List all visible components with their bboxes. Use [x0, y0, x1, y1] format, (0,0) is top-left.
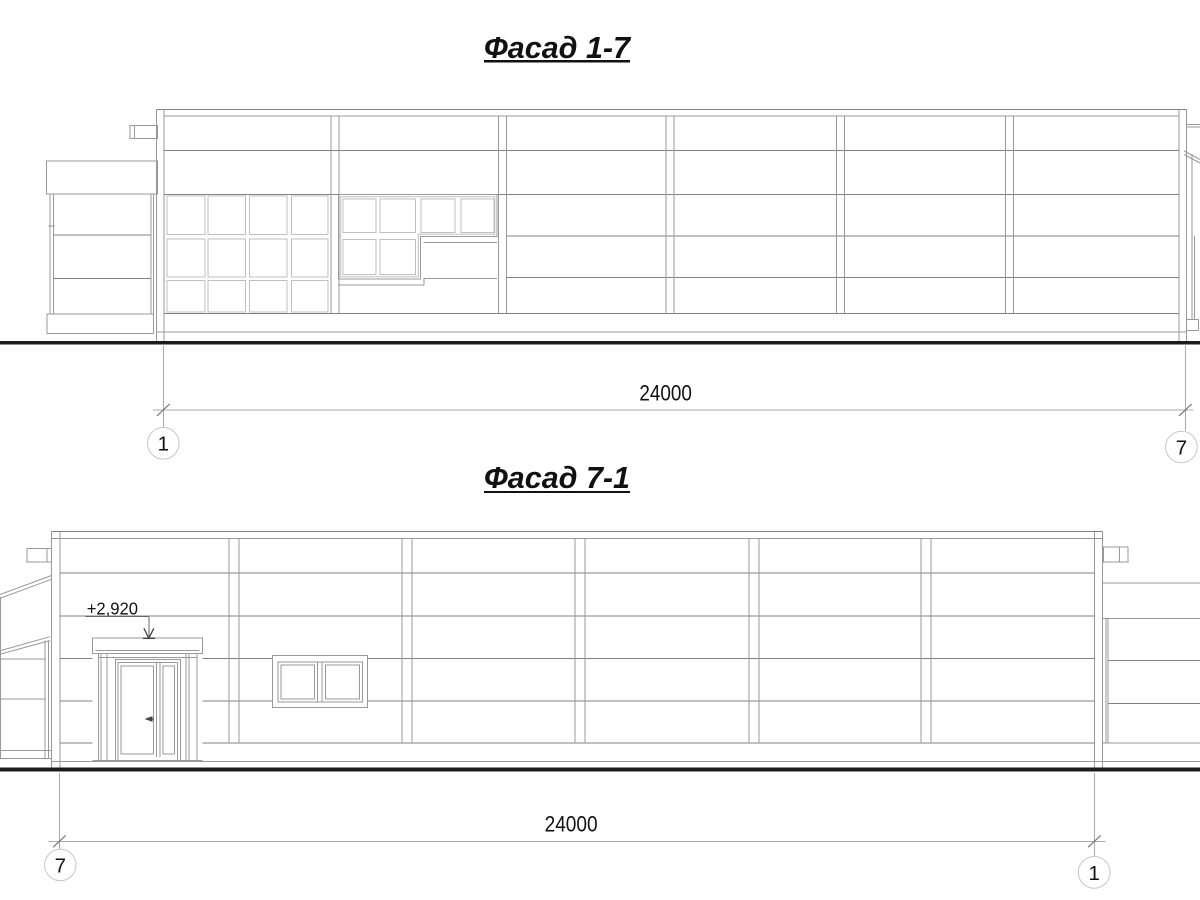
- svg-text:+2,920: +2,920: [87, 598, 139, 618]
- svg-text:1: 1: [158, 433, 169, 456]
- svg-text:Фасад 1-7: Фасад 1-7: [484, 30, 632, 65]
- svg-text:7: 7: [55, 854, 66, 877]
- svg-text:Фасад 7-1: Фасад 7-1: [484, 460, 630, 495]
- svg-text:24000: 24000: [639, 380, 692, 405]
- svg-text:24000: 24000: [545, 811, 598, 836]
- svg-text:1: 1: [1088, 862, 1099, 885]
- svg-text:7: 7: [1176, 436, 1187, 459]
